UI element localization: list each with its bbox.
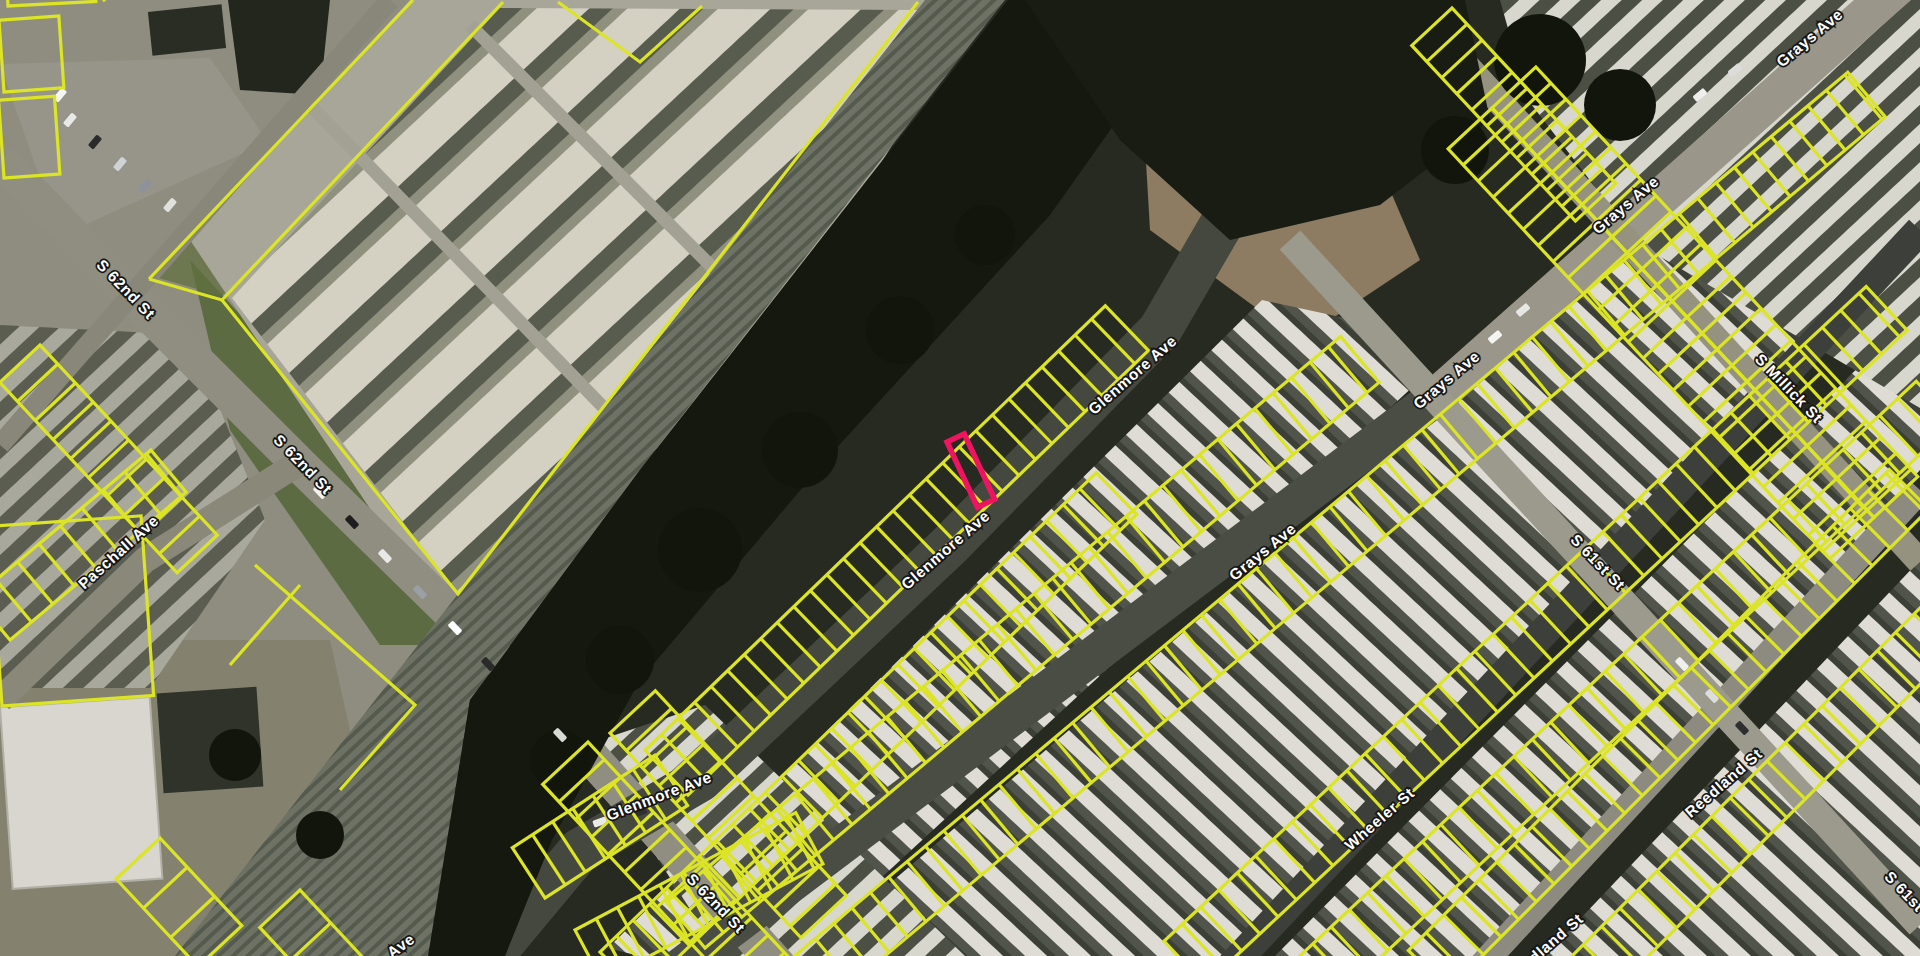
map-canvas[interactable]: S 62nd St S 62nd St S 62nd St Paschall A… [0, 0, 1920, 956]
map-viewport[interactable]: S 62nd St S 62nd St S 62nd St Paschall A… [0, 0, 1920, 956]
dark-roof-building [148, 4, 226, 55]
